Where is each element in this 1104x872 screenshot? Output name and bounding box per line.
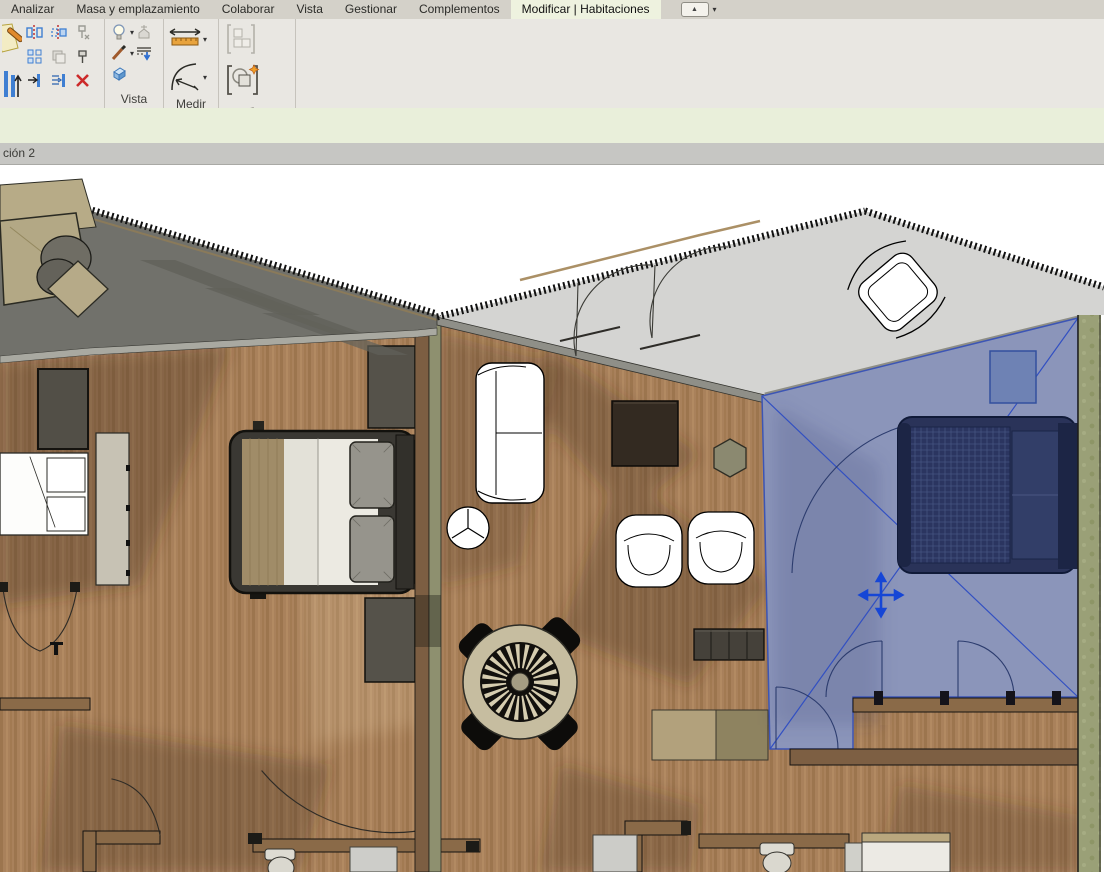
hexagon-stool[interactable]: [714, 439, 746, 477]
offset-icon[interactable]: [48, 70, 68, 90]
sofa[interactable]: [476, 363, 544, 503]
align-arrows-partial-icon[interactable]: [2, 67, 22, 106]
chevron-down-icon: ▾: [713, 5, 717, 14]
displace-disabled-icon[interactable]: [134, 22, 154, 42]
nightstand[interactable]: [368, 346, 415, 428]
ribbon-panel-vista: ▾ ▾: [105, 19, 164, 108]
create-group-disabled-icon[interactable]: [225, 22, 257, 61]
cut-icon[interactable]: [24, 22, 44, 42]
measure-caret-icon[interactable]: ▾: [203, 35, 207, 44]
angle-caret-icon[interactable]: ▾: [203, 73, 207, 82]
hide-lines-icon[interactable]: [134, 43, 154, 63]
align-icon[interactable]: [24, 70, 44, 90]
wardrobe[interactable]: [38, 369, 88, 449]
pin-icon[interactable]: [72, 46, 92, 66]
lightbulb-icon[interactable]: [109, 22, 129, 42]
coffee-table[interactable]: [612, 401, 678, 466]
shower[interactable]: [593, 835, 637, 872]
kitchen-counter[interactable]: [0, 453, 88, 535]
tab-colaborar[interactable]: Colaborar: [211, 0, 286, 19]
pillow: [350, 442, 394, 508]
floor-plan-view[interactable]: [0, 165, 1104, 872]
armchair[interactable]: [616, 515, 682, 587]
panel-label-vista: Vista: [105, 92, 163, 108]
collapse-up-icon: ▲: [681, 2, 709, 17]
unpin-disabled-icon[interactable]: [72, 22, 92, 42]
drawing-canvas[interactable]: [0, 165, 1104, 872]
shower[interactable]: [350, 847, 397, 872]
ribbon-lower-strip: [0, 108, 1104, 143]
tab-analizar[interactable]: Analizar: [0, 0, 65, 19]
green-wall[interactable]: [1078, 315, 1104, 872]
group-disabled-icon[interactable]: [48, 46, 68, 66]
revit-window: Analizar Masa y emplazamiento Colaborar …: [0, 0, 1104, 872]
tab-vista[interactable]: Vista: [285, 0, 333, 19]
media-console[interactable]: [694, 629, 764, 660]
linework-brush-icon[interactable]: [109, 43, 129, 63]
bath-counter[interactable]: [862, 833, 950, 872]
pillow: [350, 516, 394, 582]
tab-gestionar[interactable]: Gestionar: [334, 0, 408, 19]
view-title-text: ción 2: [3, 146, 35, 160]
ribbon-panel-crear: Crear: [219, 19, 296, 108]
nightstand[interactable]: [365, 598, 415, 682]
ribbon-panel-medir: ▾ ▾ Medir: [164, 19, 219, 108]
ribbon-empty-area: [296, 19, 1104, 108]
side-table[interactable]: [447, 507, 489, 549]
closet[interactable]: [96, 433, 130, 585]
tab-masa-y-emplazamiento[interactable]: Masa y emplazamiento: [65, 0, 210, 19]
ribbon-tab-bar: Analizar Masa y emplazamiento Colaborar …: [0, 0, 1104, 19]
view-title-bar[interactable]: ción 2: [0, 143, 1104, 165]
measure-icon[interactable]: [168, 27, 202, 52]
ribbon-collapse-button[interactable]: ▲ ▾: [681, 0, 717, 19]
ribbon-panel-modificar-partial: r: [0, 19, 105, 108]
party-wall[interactable]: [410, 315, 441, 872]
dining-set[interactable]: [455, 614, 584, 754]
edit-geometry-partial-icon[interactable]: [2, 22, 22, 67]
bench[interactable]: [652, 710, 768, 760]
copy-icon[interactable]: [48, 22, 68, 42]
ribbon: r ▾ ▾: [0, 19, 1104, 108]
angle-dimension-icon[interactable]: [168, 58, 202, 97]
window-panel[interactable]: [990, 351, 1036, 403]
bed-left-apartment[interactable]: [230, 431, 415, 593]
delete-icon[interactable]: [72, 70, 92, 90]
tab-complementos[interactable]: Complementos: [408, 0, 511, 19]
bed-selected-room[interactable]: [898, 417, 1078, 573]
armchair[interactable]: [688, 512, 754, 584]
array-icon[interactable]: [24, 46, 44, 66]
toilet[interactable]: [760, 843, 794, 872]
toilet[interactable]: [265, 849, 295, 872]
section-box-icon[interactable]: [109, 64, 129, 84]
tab-modificar-habitaciones[interactable]: Modificar | Habitaciones: [511, 0, 661, 19]
create-assembly-icon[interactable]: [225, 63, 261, 102]
